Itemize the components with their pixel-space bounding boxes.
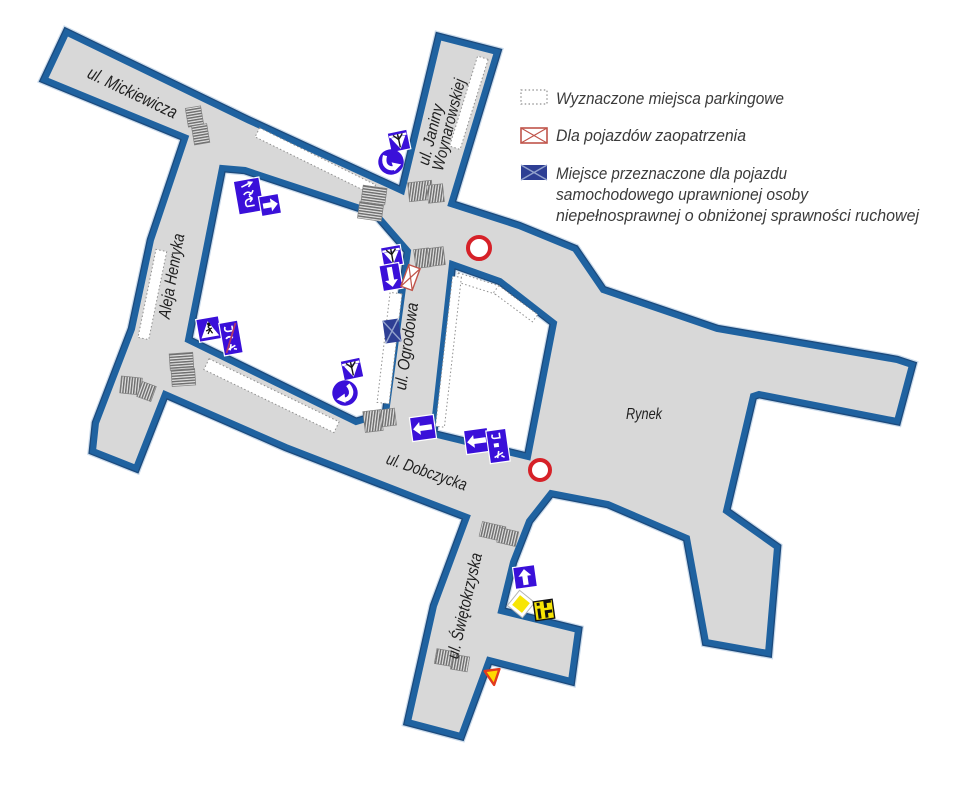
svg-text:Dla pojazdów zaopatrzenia: Dla pojazdów zaopatrzenia <box>556 126 746 145</box>
svg-text:Wyznaczone miejsca parkingowe: Wyznaczone miejsca parkingowe <box>556 89 784 108</box>
svg-text:Miejsce przeznaczone dla pojaz: Miejsce przeznaczone dla pojazdu <box>556 164 787 183</box>
svg-text:samochodowego uprawnionej osob: samochodowego uprawnionej osoby <box>556 185 809 204</box>
svg-text:niepełnosprawnej o obniżonej s: niepełnosprawnej o obniżonej sprawności … <box>556 206 920 225</box>
svg-text:Rynek: Rynek <box>626 406 663 423</box>
